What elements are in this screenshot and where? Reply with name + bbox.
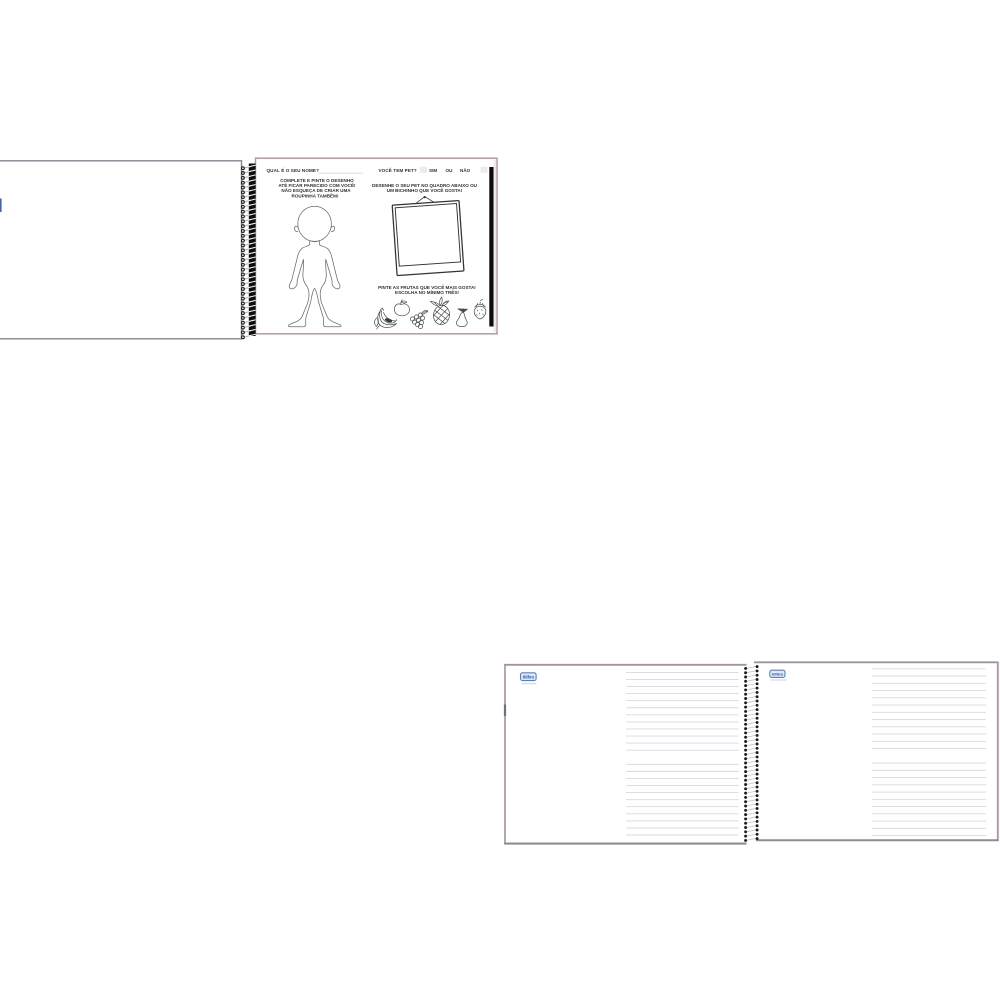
svg-text:VOCÊ TEM PET?: VOCÊ TEM PET? [379,166,417,173]
svg-text:ROUPINHA TAMBÉM!: ROUPINHA TAMBÉM! [292,191,339,198]
svg-text:ESCOLHA NO MÍNIMO TRÊS!: ESCOLHA NO MÍNIMO TRÊS! [395,288,459,295]
svg-text:tilibra: tilibra [772,672,784,677]
svg-text:ATÉ FICAR PARECIDO COM VOCÊ!: ATÉ FICAR PARECIDO COM VOCÊ! [278,181,356,188]
svg-text:OU: OU [446,168,454,173]
svg-text:tilibra: tilibra [523,675,535,680]
svg-text:PINTE AS FRUTAS QUE VOCÊ MAIS: PINTE AS FRUTAS QUE VOCÊ MAIS GOSTA! [378,283,476,290]
svg-text:UM BICHINHO QUE VOCÊ GOSTA!: UM BICHINHO QUE VOCÊ GOSTA! [387,186,463,193]
svg-text:QUAL É O SEU NOME?: QUAL É O SEU NOME? [267,166,320,173]
svg-text:NÃO ESQUEÇA DE CRIAR UMA: NÃO ESQUEÇA DE CRIAR UMA [281,187,351,193]
svg-text:SIM: SIM [429,168,437,173]
svg-text:NÃO: NÃO [460,167,471,173]
